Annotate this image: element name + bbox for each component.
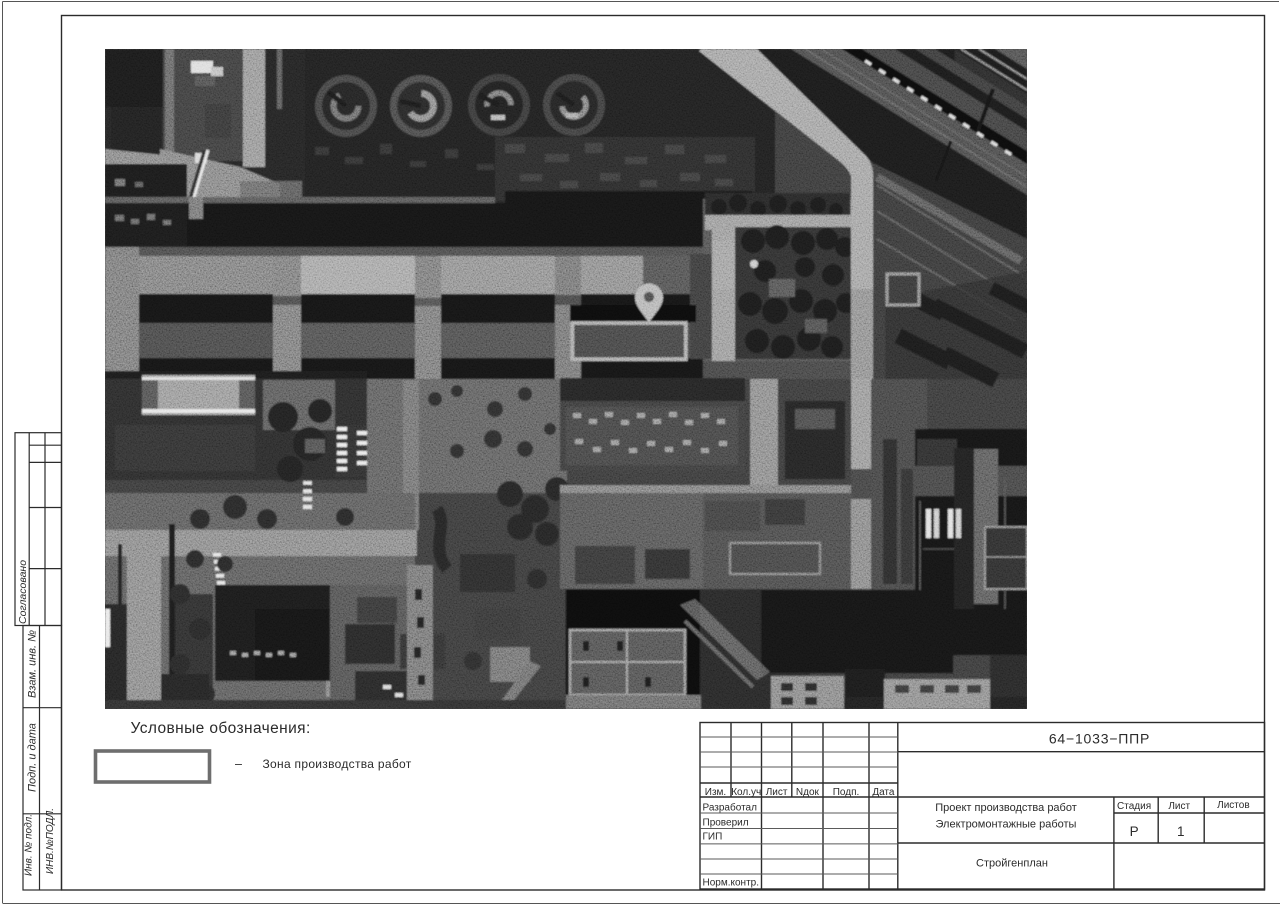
svg-text:Кол.уч: Кол.уч (731, 787, 761, 798)
svg-text:Nдок: Nдок (796, 787, 820, 798)
svg-text:ИНВ.№ПОДЛ.: ИНВ.№ПОДЛ. (45, 808, 56, 874)
svg-text:Дата: Дата (872, 787, 895, 798)
svg-text:1: 1 (1177, 824, 1185, 839)
svg-text:–: – (235, 757, 242, 771)
svg-text:Разработал: Разработал (703, 802, 758, 814)
svg-text:Подп.: Подп. (833, 787, 860, 798)
svg-text:Согласовано: Согласовано (17, 560, 29, 624)
svg-text:Лист: Лист (1168, 801, 1190, 812)
svg-text:Листов: Листов (1217, 800, 1250, 811)
svg-text:Изм.: Изм. (705, 787, 726, 798)
svg-text:Проверил: Проверил (703, 818, 749, 829)
svg-text:Условные обозначения:: Условные обозначения: (131, 720, 311, 737)
svg-text:Р: Р (1130, 824, 1139, 839)
svg-text:Взам. инв. №: Взам. инв. № (27, 630, 39, 698)
svg-text:Электромонтажные работы: Электромонтажные работы (936, 819, 1077, 831)
svg-text:64−1033−ППР: 64−1033−ППР (1049, 731, 1150, 747)
svg-text:Инв. № подл.: Инв. № подл. (24, 814, 35, 876)
svg-text:Проект производства работ: Проект производства работ (935, 802, 1077, 814)
svg-text:Подп. и дата: Подп. и дата (27, 723, 39, 792)
svg-text:Зона производства работ: Зона производства работ (263, 757, 412, 771)
svg-text:ГИП: ГИП (703, 832, 723, 843)
svg-text:Стройгенплан: Стройгенплан (976, 858, 1048, 870)
svg-text:Стадия: Стадия (1117, 801, 1151, 812)
svg-text:Норм.контр.: Норм.контр. (703, 878, 760, 889)
svg-text:Лист: Лист (766, 787, 788, 798)
